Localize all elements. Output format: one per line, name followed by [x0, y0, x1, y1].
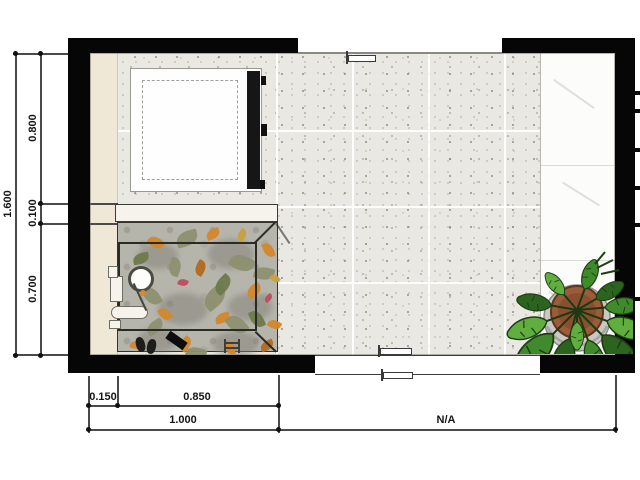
dim-left-mid: 0.100 [27, 199, 39, 227]
dim-bottom-total: 1.000 [169, 414, 197, 426]
washing-machine-panel [247, 71, 260, 189]
dimension-line [88, 429, 617, 431]
stroller-frame [110, 276, 123, 302]
dimension-line [15, 53, 17, 355]
right-wall-tick [635, 91, 640, 95]
dimension-dot [86, 403, 91, 408]
appliance-knob [260, 180, 265, 189]
drain-grate-icon [224, 339, 240, 353]
section-marker-icon [348, 55, 376, 62]
rug-corner-diagonal [254, 222, 276, 244]
door-opening [315, 355, 540, 375]
dimension-line [615, 375, 617, 433]
marble-vein [562, 181, 600, 206]
stroller-accent [140, 290, 146, 296]
dim-left-top: 0.800 [27, 114, 39, 142]
wall-bottom-left [68, 355, 315, 373]
dimension-dot [38, 353, 43, 358]
floor-plan-canvas: 1.600 0.800 0.100 0.700 0.150 0.850 1.00… [0, 0, 640, 480]
dim-left-bottom: 0.700 [27, 275, 39, 303]
tile-gridline [352, 53, 354, 355]
dimension-dot [38, 51, 43, 56]
appliance-knob [261, 76, 266, 85]
rug-leaf [263, 293, 274, 303]
wall-left [68, 38, 90, 355]
washing-machine-icon [130, 68, 262, 192]
section-marker-tick [346, 51, 348, 64]
right-wall-tick [635, 223, 640, 227]
dimension-dot [115, 403, 120, 408]
dim-bottom-right: N/A [437, 414, 456, 426]
wall-bottom-right [540, 355, 635, 373]
section-marker-icon [380, 348, 412, 355]
wall-top-opening-line [298, 52, 502, 54]
wall-top-left [68, 38, 298, 53]
dimension-dot [276, 427, 281, 432]
dim-left-total: 1.600 [2, 190, 14, 218]
marble-seam [541, 165, 616, 166]
right-wall-tick [635, 297, 640, 301]
tile-gridline [428, 53, 430, 355]
section-marker-tick [378, 345, 380, 357]
section-marker-icon [383, 372, 413, 379]
stroller-frame [109, 320, 121, 329]
dim-bottom-inset: 0.150 [89, 391, 117, 403]
washing-machine-lid-outline [142, 80, 238, 180]
step-threshold [115, 204, 278, 222]
stroller-icon [108, 258, 170, 332]
stroller-frame [108, 266, 118, 278]
dimension-dot [13, 51, 18, 56]
dim-bottom-span: 0.850 [183, 391, 211, 403]
marble-vein [553, 79, 595, 109]
dimension-dot [276, 403, 281, 408]
rug-leaf [261, 241, 276, 259]
rug-leaf [205, 227, 222, 241]
right-wall-tick [635, 109, 640, 113]
dimension-dot [613, 427, 618, 432]
dimension-dot [13, 353, 18, 358]
stroller-wheel [128, 266, 154, 292]
section-marker-tick [381, 369, 383, 381]
appliance-knob [261, 124, 267, 136]
right-wall-tick [635, 148, 640, 152]
right-wall-tick [635, 186, 640, 190]
stroller-seat [111, 306, 148, 319]
monstera-plant-icon [505, 238, 633, 354]
dimension-dot [86, 427, 91, 432]
